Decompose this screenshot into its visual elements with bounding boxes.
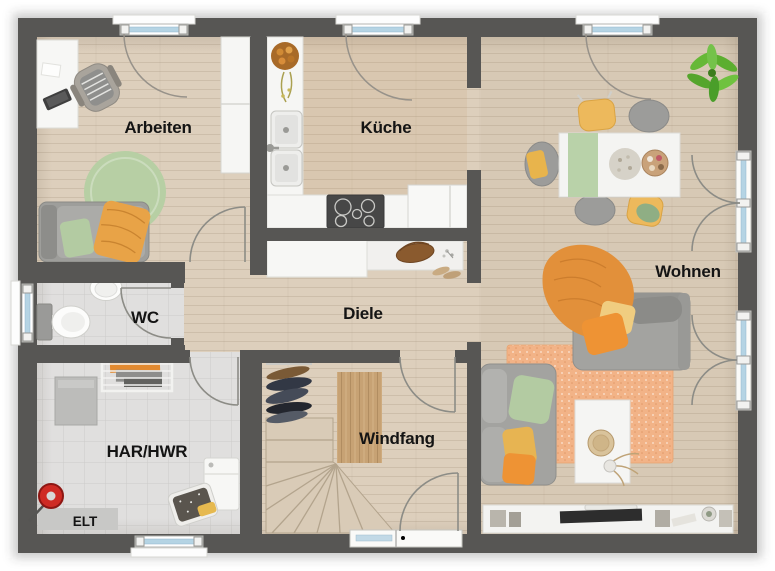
cooktop (327, 195, 384, 228)
room-label-wc: WC (131, 308, 159, 327)
storage-box-top (58, 380, 94, 388)
dining-chair-gray (629, 100, 669, 132)
wall (467, 37, 481, 88)
wall (240, 350, 262, 534)
window-har-bottom (131, 536, 207, 557)
desk (37, 40, 78, 128)
floor-plan-page: Arbeiten Küche Wohnen WC Diele Windfang … (0, 0, 775, 571)
door-handle-icon (401, 536, 405, 540)
books (655, 510, 670, 527)
back-cushion (627, 295, 683, 325)
window-glass (25, 291, 30, 335)
books (509, 512, 521, 527)
shade-top (37, 37, 738, 53)
wall (240, 350, 400, 363)
window-wc-left (11, 281, 33, 345)
wall (455, 350, 467, 363)
wall (171, 283, 184, 288)
wall (467, 342, 481, 534)
toilet (37, 304, 90, 340)
room-label-wohnen: Wohnen (655, 262, 721, 281)
table-runner (568, 133, 598, 197)
room-label-arbeiten: Arbeiten (124, 118, 191, 137)
books (719, 510, 732, 527)
wardrobe (221, 37, 250, 173)
flower-bowl (642, 150, 668, 176)
window-glass (142, 539, 196, 544)
doormat (337, 372, 382, 463)
kitchen-sink (266, 111, 302, 186)
books (490, 510, 506, 527)
window-glass (350, 27, 406, 32)
dining-chair-gray (575, 195, 615, 225)
room-label-har-hwr: HAR/HWR (107, 442, 188, 461)
wall (467, 170, 481, 283)
wall (37, 262, 185, 283)
fridge-unit (408, 185, 467, 228)
room-label-kueche: Küche (361, 118, 412, 137)
sideboard (267, 240, 367, 277)
bouquet (609, 148, 641, 180)
vase (604, 460, 616, 472)
room-label-diele: Diele (343, 304, 383, 323)
window-glass (127, 27, 181, 32)
sidelight-glass (356, 535, 392, 541)
papers (41, 63, 60, 77)
room-label-elt: ELT (73, 514, 98, 529)
wall (37, 350, 190, 363)
green-pillow (507, 374, 555, 425)
green-pillow (59, 218, 95, 259)
shade-right (723, 37, 738, 534)
wall (253, 228, 467, 241)
coffee-table (575, 400, 639, 486)
room-diele (267, 240, 463, 281)
window-glass (590, 27, 645, 32)
floor-plan-svg: Arbeiten Küche Wohnen WC Diele Windfang … (0, 0, 775, 571)
room-label-windfang: Windfang (359, 429, 435, 448)
daybed (39, 199, 152, 265)
orange-pillow (502, 453, 536, 486)
tv-lowboard (483, 505, 733, 533)
